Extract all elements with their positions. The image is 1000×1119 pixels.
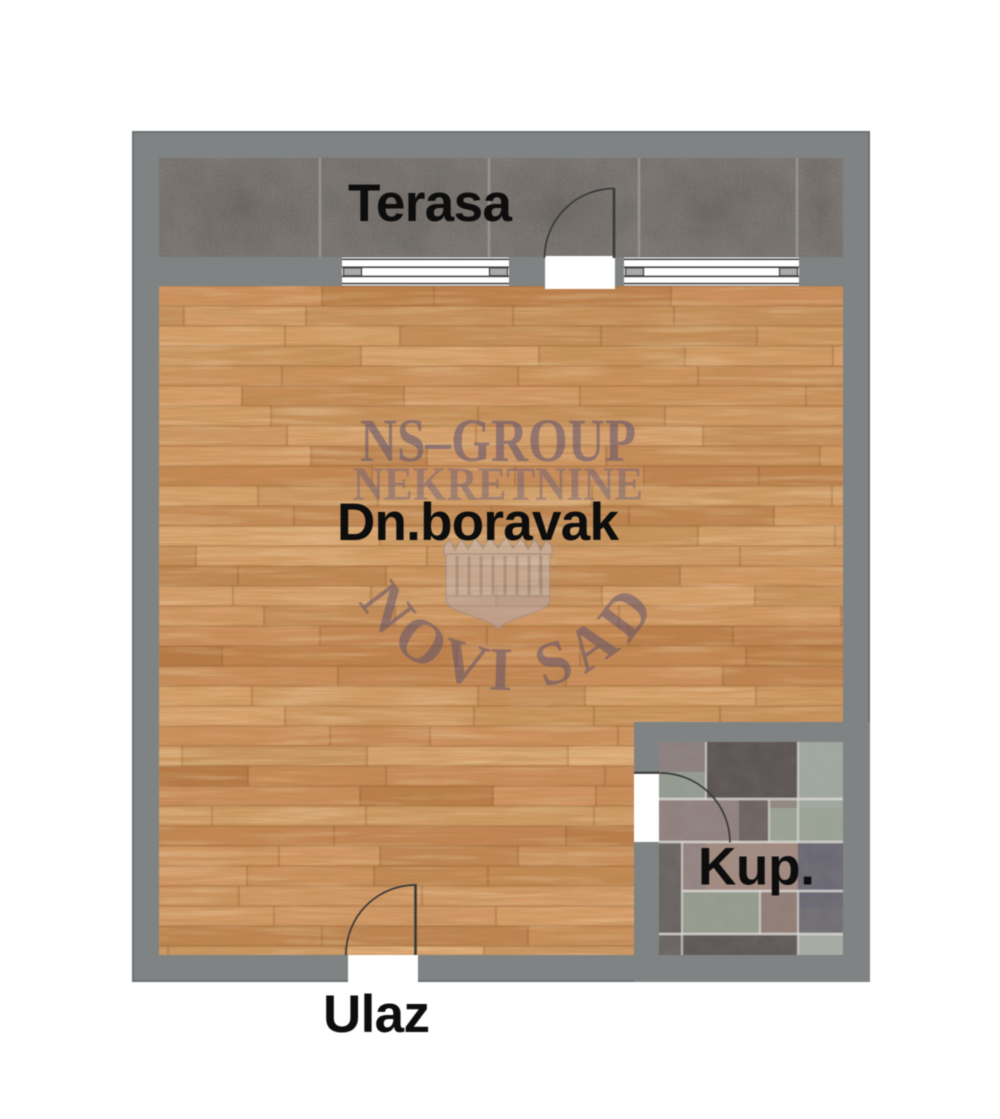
svg-text:Ulaz: Ulaz — [323, 985, 430, 1044]
svg-text:Dn.boravak: Dn.boravak — [337, 493, 620, 552]
svg-text:Kup.: Kup. — [698, 838, 815, 897]
svg-text:Terasa: Terasa — [348, 174, 513, 233]
